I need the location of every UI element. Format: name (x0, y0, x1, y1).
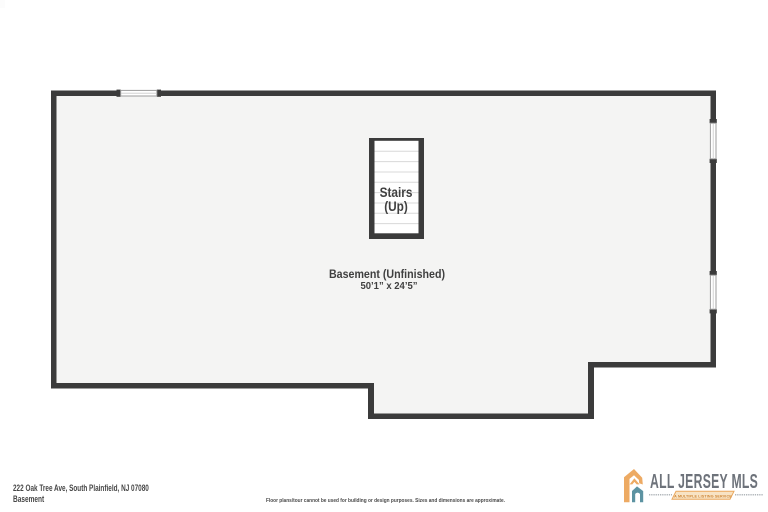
svg-text:A MULTIPLE LISTING SERVICE: A MULTIPLE LISTING SERVICE (674, 494, 732, 498)
